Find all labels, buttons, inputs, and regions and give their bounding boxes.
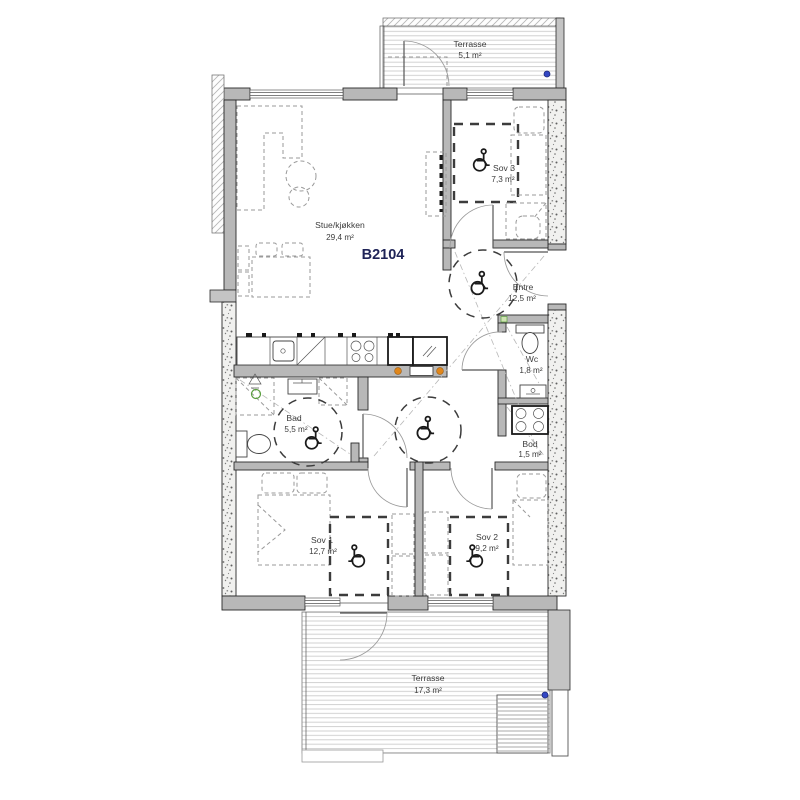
stue-label: Stue/kjøkken: [315, 220, 365, 230]
left-wall-cap: [210, 290, 236, 302]
entrance-jamb-top: [548, 244, 566, 250]
wc-area: 1,8 m²: [519, 366, 542, 375]
wall-corridor-south-right: [495, 462, 548, 470]
terrace-edge-step: [302, 750, 383, 762]
wall-bad-east-lower: [358, 458, 368, 462]
dining-chair: [282, 243, 303, 256]
terrace-top-right-wall: [556, 18, 564, 88]
terrace-top: Terrasse 5,1 m²: [380, 18, 564, 88]
floor-plan-drawing: Terrasse 5,1 m²: [0, 0, 800, 800]
left-wall-concrete: [222, 302, 236, 596]
door-sov3: [450, 205, 493, 248]
wall-wc-west-upper: [498, 323, 506, 332]
wall-stue-entre-stub: [443, 248, 451, 270]
wall-segment: [513, 88, 566, 100]
wall-segment: [222, 596, 305, 610]
kitchen-sink: [273, 341, 294, 361]
door-wc: [462, 332, 502, 370]
sov3-area: 7,3 m²: [491, 175, 514, 184]
wheelchair-icon: [471, 272, 488, 295]
room-sov2: Sov 2 9,2 m²: [425, 474, 548, 595]
wall-wc-bod-divider: [498, 398, 548, 404]
window-bottom-right: [428, 598, 493, 606]
room-sov3: Sov 3 7,3 m²: [454, 107, 546, 239]
door-bad: [363, 414, 407, 458]
floor-plan-page: Terrasse 5,1 m²: [0, 0, 800, 800]
terrace-bottom: Terrasse 17,3 m²: [302, 610, 570, 762]
door-sov2: [451, 468, 492, 509]
room-bad: Bad 5,5 m²: [236, 374, 347, 466]
wc-label: Wc: [526, 354, 539, 364]
bed-pillow: [297, 473, 327, 493]
door-sov1: [368, 468, 407, 507]
sov2-label: Sov 2: [476, 532, 498, 542]
socket-orange-icon: [395, 368, 402, 375]
window-bottom-left: [305, 598, 340, 606]
wall-stue-sov3: [443, 100, 451, 240]
wall-bad-south: [234, 462, 368, 470]
wheelchair-icon: [474, 149, 490, 171]
wall-segment: [443, 88, 467, 100]
dining-chair-side: [238, 246, 249, 270]
single-bed: [513, 500, 548, 565]
bod-label: Bod: [522, 439, 538, 449]
toilet-bowl: [248, 435, 271, 454]
dining-chair: [256, 243, 277, 256]
entre-label: Entre: [513, 282, 534, 292]
bad-area: 5,5 m²: [284, 425, 307, 434]
terrace-bottom-label: Terrasse: [412, 673, 445, 683]
wall-cabinet-ticks: [246, 333, 400, 337]
terrace-top-area: 5,1 m²: [458, 51, 481, 60]
wall-niche: [410, 367, 433, 376]
right-wall-lower: [548, 310, 566, 596]
drain-dot-icon: [542, 692, 548, 698]
window-top-right: [467, 90, 513, 98]
chair: [289, 187, 309, 207]
wardrobe: [425, 512, 448, 553]
window-top-left: [250, 90, 343, 98]
wall-sov3-south-left: [443, 240, 455, 248]
terrace-top-label: Terrasse: [454, 39, 487, 49]
wall-segment: [343, 88, 397, 100]
drain-dot-icon: [544, 71, 550, 77]
wheelchair-icon: [348, 545, 364, 567]
bad-sink: [288, 379, 317, 394]
bed-pillow: [262, 473, 294, 493]
dining-table: [252, 257, 310, 297]
dining-chair-side: [238, 272, 249, 296]
toilet-cistern: [516, 325, 544, 333]
wheelchair-icon: [417, 417, 434, 440]
kitchen-counter: [237, 333, 447, 365]
terrace-right-rail: [552, 690, 568, 756]
right-wall-upper: [548, 100, 566, 244]
green-marker-icon: [501, 317, 507, 323]
wall-sov1-sov2: [415, 462, 423, 596]
wardrobe: [392, 556, 414, 596]
room-wc: Wc 1,8 m²: [516, 325, 546, 398]
terrace-top-hatched-edge: [383, 18, 560, 26]
entre-area: 12,5 m²: [508, 294, 536, 303]
entrance-jamb-bottom: [548, 304, 566, 310]
left-wall-upper: [224, 100, 236, 290]
bod-area: 1,5 m²: [518, 450, 541, 459]
stue-area: 29,4 m²: [326, 233, 354, 242]
tall-cabinet: [413, 337, 447, 365]
wall-segment: [493, 596, 557, 610]
wall-segment: [388, 596, 428, 610]
room-stue-kjokken: Stue/kjøkken 29,4 m² B2104: [237, 106, 446, 297]
stairs: [497, 695, 548, 753]
blanket-fold: [258, 505, 285, 552]
room-bod: Bod 1,5 m²: [512, 406, 548, 459]
apartment-id-label: B2104: [362, 247, 405, 263]
bed-pillow: [517, 474, 546, 498]
toilet-cistern: [236, 431, 247, 457]
bed: [511, 135, 546, 195]
bad-label: Bad: [286, 413, 302, 423]
fridge: [388, 337, 413, 365]
socket-orange-icon: [437, 368, 444, 375]
blanket-fold: [513, 500, 530, 517]
wall-bad-east-upper: [358, 377, 368, 410]
wall-stub: [351, 443, 359, 463]
wardrobe: [392, 514, 414, 554]
wheelchair-icon: [306, 427, 322, 449]
toilet-bowl: [522, 333, 538, 354]
wall-segment: [224, 88, 250, 100]
desk-chair: [516, 216, 540, 239]
sov1-area: 12,7 m²: [309, 547, 337, 556]
sov3-label: Sov 3: [493, 163, 515, 173]
terrace-bottom-area: 17,3 m²: [414, 686, 442, 695]
wc-sink: [520, 385, 546, 398]
wall-sov3-south-right: [493, 240, 548, 248]
sofa-outline: [237, 106, 302, 210]
wardrobe: [425, 555, 448, 595]
room-sov1: Sov 1 12,7 m²: [258, 473, 414, 596]
round-table: [286, 161, 316, 191]
sov2-area: 9,2 m²: [475, 544, 498, 553]
terrace-right-wall: [548, 610, 570, 690]
sov1-label: Sov 1: [311, 535, 333, 545]
left-hatched-wall: [212, 75, 224, 233]
